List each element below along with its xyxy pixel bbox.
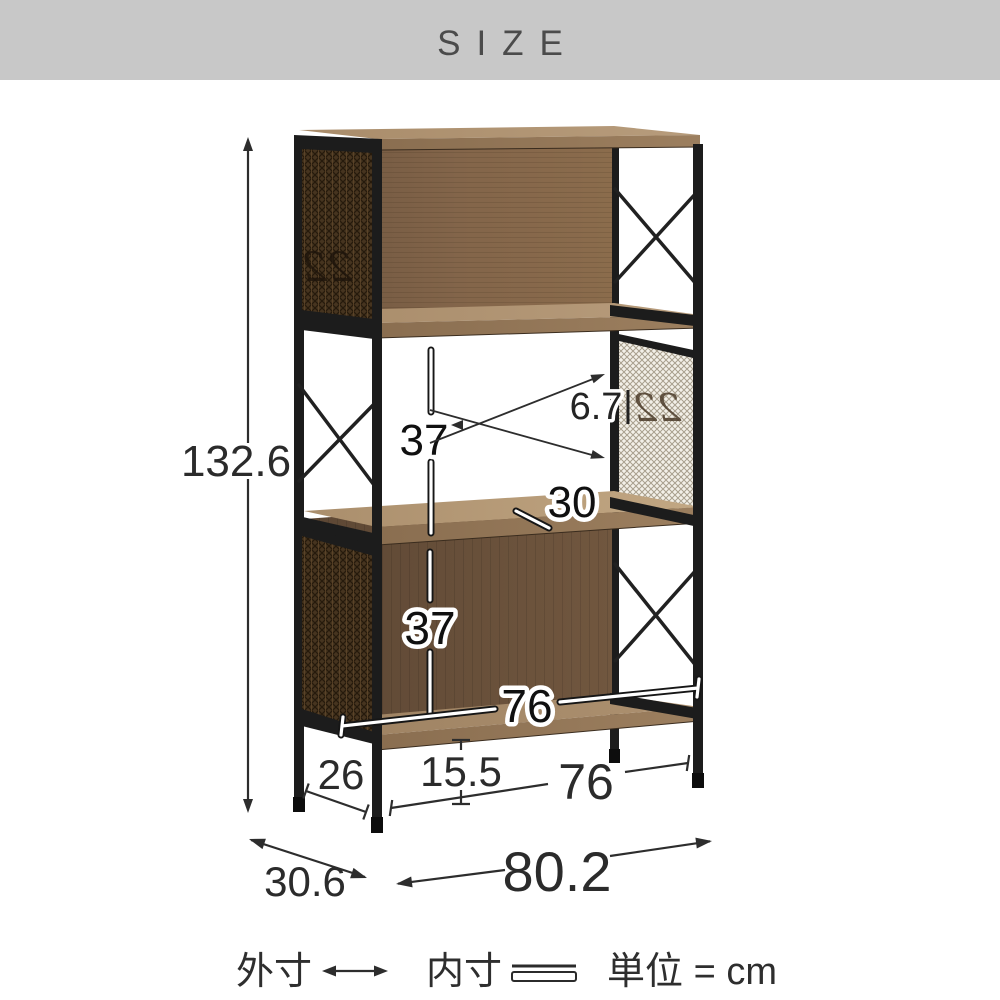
page-title: SIZE [437, 24, 579, 63]
dim-total-depth: 30.6 [249, 839, 367, 905]
dim-inner-height-middle-label: 37 [400, 416, 449, 465]
mesh-monogram-top: 22 [302, 245, 354, 291]
mesh-panel-top-left: 22 [294, 135, 382, 330]
dim-side-foot-depth-label: 26 [318, 751, 365, 798]
dim-foot-height: 15.5 [420, 740, 502, 804]
size-diagram: SIZE 22 [0, 0, 1000, 1000]
mesh-panel-middle-right: 22 [614, 333, 698, 521]
mesh-dark-surface-bottom [302, 536, 374, 732]
mesh-monogram-middle: 22 [633, 386, 682, 430]
page-header: SIZE [0, 0, 1000, 80]
mesh-panel-bottom-left [294, 523, 382, 743]
dim-foot-height-label: 15.5 [420, 748, 502, 795]
x-brace-bottom-right [615, 564, 697, 667]
dim-inner-height-lower-label: 37 [404, 602, 455, 654]
dim-total-height: 132.6 [181, 137, 291, 813]
dim-total-height-label: 132.6 [181, 437, 291, 486]
dim-side-foot-depth: 26 [303, 751, 368, 820]
legend-unit-label: 単位 = cm [607, 951, 777, 993]
mesh-dark-surface-top [302, 149, 374, 319]
front-left-post [372, 139, 382, 833]
dim-mesh-inset: 6.7 [430, 374, 628, 459]
size-diagram-page: SIZE 22 [0, 0, 1000, 1000]
dim-total-width: 80.2 [396, 838, 712, 903]
x-brace-top-right [615, 189, 697, 285]
dim-inner-depth-label: 30 [548, 478, 597, 527]
legend: 外寸 内寸 単位 = cm [236, 951, 777, 993]
legend-outer-label: 外寸 [236, 951, 312, 993]
x-brace-middle-left [299, 385, 377, 489]
dim-inner-width-label: 76 [501, 680, 552, 732]
dim-total-width-label: 80.2 [503, 840, 612, 903]
dim-total-depth-label: 30.6 [264, 858, 346, 905]
legend-outer-arrow-icon [322, 966, 388, 977]
dim-front-foot-span-label: 76 [558, 754, 614, 810]
dim-mesh-inset-label: 6.7 [570, 386, 623, 428]
legend-inner-line-icon [512, 966, 576, 981]
legend-inner-label: 内寸 [426, 951, 502, 993]
